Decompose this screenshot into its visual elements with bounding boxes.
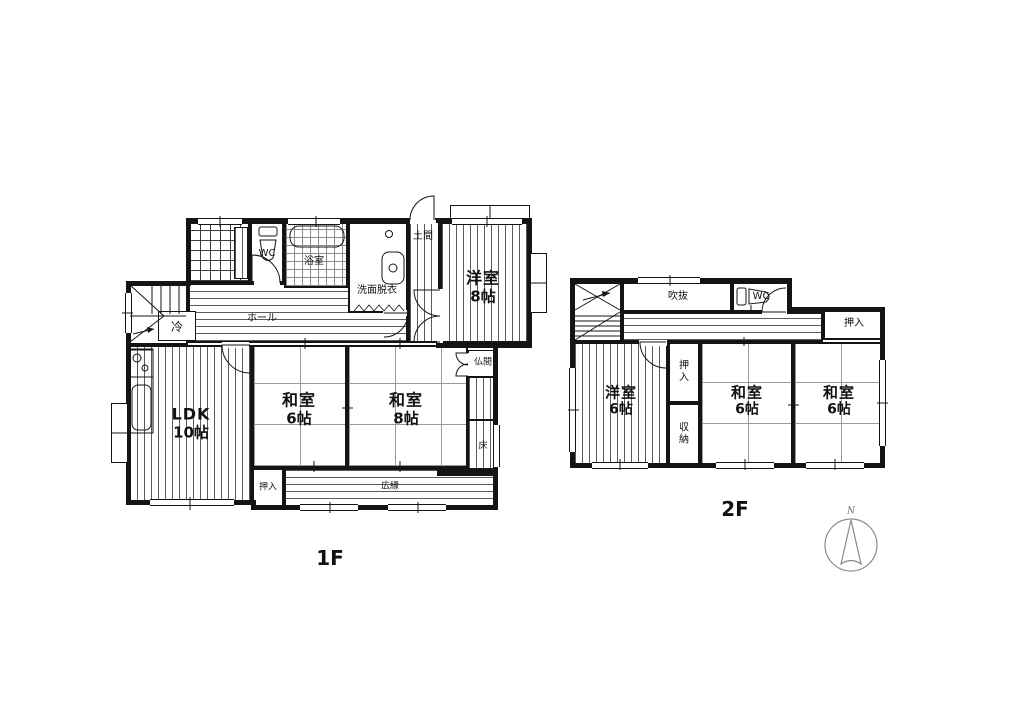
window [638, 277, 700, 284]
label-hiroen: 広縁 [381, 482, 399, 493]
label-ldk: LDK 10帖 [172, 404, 211, 441]
label-bath: 浴室 [304, 256, 324, 268]
label-wc-1f: WC [259, 248, 276, 260]
window [879, 360, 886, 446]
window [125, 293, 132, 333]
room-corridor-2f [622, 312, 823, 342]
bay-window-west [111, 403, 128, 463]
label-fridge: 冷 [171, 320, 183, 334]
label-oshiire-1f: 押入 [259, 483, 277, 494]
sliding-door [356, 466, 446, 471]
label-western6: 洋室 6帖 [605, 384, 637, 419]
wall-segment [126, 281, 191, 286]
wall-segment [787, 307, 885, 312]
sliding-door [356, 343, 448, 348]
door-gap [222, 342, 249, 348]
door-gap [465, 353, 471, 376]
window [716, 462, 774, 469]
sliding-door [345, 362, 350, 454]
door-gap [410, 215, 435, 224]
window [288, 218, 340, 225]
storage-shelf [234, 227, 248, 279]
label-oshiire-2f-top: 押入 [844, 318, 864, 330]
label-washroom: 洗面脱衣 [357, 285, 397, 297]
wall-segment [437, 470, 497, 476]
wall-segment [436, 343, 532, 348]
label-oshiire-2f-mid: 押入 [679, 361, 690, 384]
room-stairs-2f [573, 282, 622, 342]
label-washitsu8: 和室 8帖 [389, 390, 423, 427]
window [569, 368, 576, 452]
window [592, 462, 648, 469]
label-tokonoma: 床 [478, 442, 487, 453]
floor2-title: 2F [721, 497, 749, 521]
label-western8: 洋室 8帖 [466, 268, 500, 305]
door-gap [383, 310, 407, 316]
floor-plan-canvas: WC 浴室 洗面脱衣 土間 洋室 8帖 ホール 冷 LDK 10帖 和室 6帖 … [0, 0, 1024, 724]
label-doma: 土間 [413, 231, 433, 243]
label-washitsu6-center: 和室 6帖 [731, 384, 763, 419]
door-gap [639, 340, 667, 346]
window [452, 218, 522, 225]
bay-window-east [530, 253, 547, 313]
room-bath [284, 222, 348, 288]
label-wc-2f: WC [753, 291, 770, 303]
floor1-title: 1F [316, 546, 344, 570]
label-shuno: 収納 [679, 423, 690, 446]
sliding-door [290, 466, 344, 471]
label-butsuma: 仏間 [474, 358, 492, 369]
label-fukinuke: 吹抜 [668, 291, 688, 303]
window [388, 504, 446, 511]
sliding-door [791, 366, 796, 444]
sliding-door [712, 340, 776, 345]
window [806, 462, 864, 469]
label-washitsu6-right: 和室 6帖 [823, 384, 855, 419]
window [300, 504, 358, 511]
door-gap [762, 309, 787, 315]
compass-north-label: N [847, 507, 855, 518]
label-hall: ホール [247, 313, 277, 325]
compass-icon [825, 519, 877, 571]
wall-segment [251, 505, 498, 510]
wall-segment [186, 218, 191, 285]
sliding-door [806, 340, 864, 345]
room-washroom [348, 222, 408, 313]
door-gap [437, 289, 443, 343]
door-gap [254, 280, 280, 286]
porch-step [450, 205, 530, 219]
label-washitsu6: 和室 6帖 [282, 390, 316, 427]
window [198, 218, 242, 225]
sliding-door [286, 343, 338, 348]
window [150, 499, 234, 506]
window [493, 425, 500, 467]
